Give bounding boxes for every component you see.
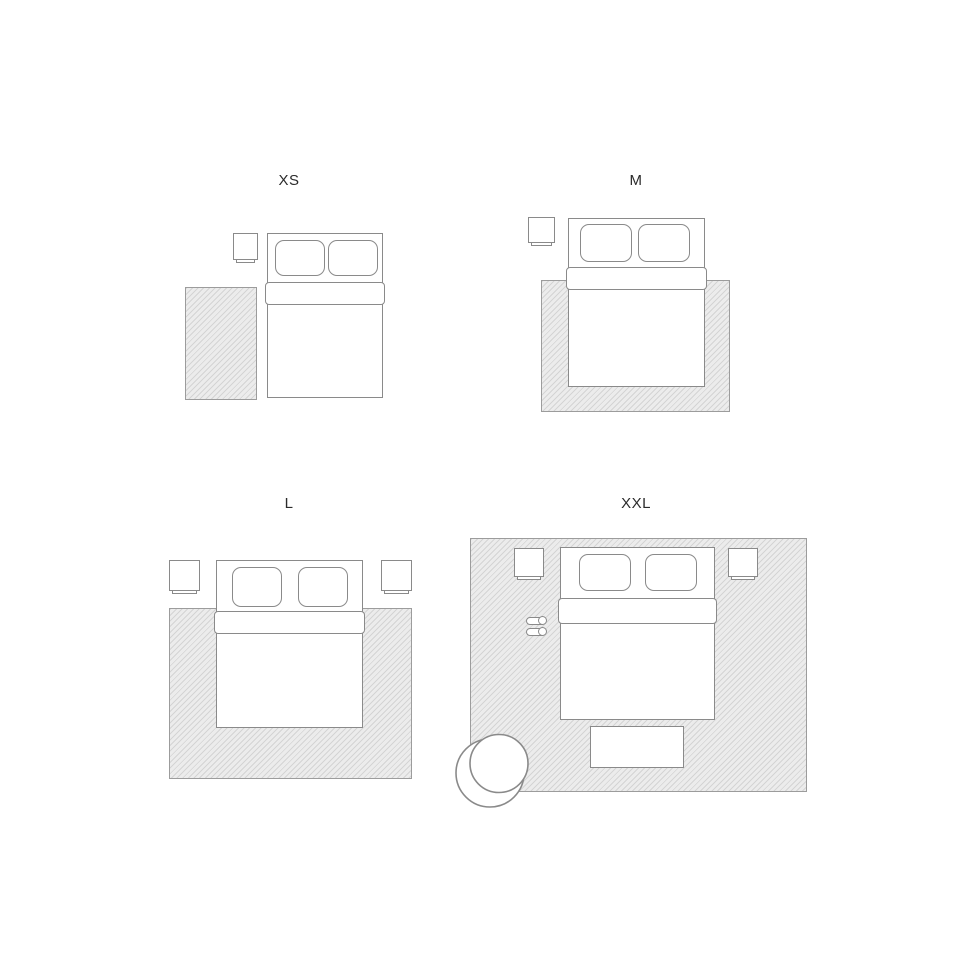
bed-xs xyxy=(267,233,383,398)
slipper-top xyxy=(526,617,545,625)
size-label-l: L xyxy=(239,495,339,512)
nightstand-base xyxy=(531,242,552,246)
bed-xxl xyxy=(560,547,715,720)
rug-xs xyxy=(185,287,257,400)
pillow-left xyxy=(275,240,325,276)
nightstand-base xyxy=(731,576,755,580)
nightstand-left xyxy=(514,548,544,577)
pillow-right xyxy=(328,240,378,276)
sheet-fold xyxy=(566,267,707,290)
nightstand-xs xyxy=(233,233,258,260)
slipper-bottom xyxy=(526,628,545,636)
rug-size-guide: XS M L xyxy=(0,0,970,971)
sheet-fold xyxy=(558,598,717,624)
size-label-xxl: XXL xyxy=(586,495,686,512)
nightstand-left xyxy=(169,560,200,591)
bed-m xyxy=(568,218,705,387)
armchair-icon xyxy=(452,731,530,813)
nightstand-m xyxy=(528,217,555,243)
pillow-right xyxy=(298,567,348,607)
pillow-left xyxy=(579,554,631,591)
nightstand-base xyxy=(384,590,409,594)
pillow-right xyxy=(645,554,697,591)
pillow-right xyxy=(638,224,690,262)
bed-l xyxy=(216,560,363,728)
nightstand-base xyxy=(236,259,255,263)
foot-bench xyxy=(590,726,684,768)
sheet-fold xyxy=(265,282,385,305)
pillow-left xyxy=(232,567,282,607)
slippers-icon xyxy=(526,617,545,636)
nightstand-right xyxy=(381,560,412,591)
nightstand-base xyxy=(172,590,197,594)
pillow-left xyxy=(580,224,632,262)
nightstand-right xyxy=(728,548,758,577)
nightstand-base xyxy=(517,576,541,580)
size-label-m: M xyxy=(586,172,686,189)
armchair-seat xyxy=(470,735,528,793)
size-label-xs: XS xyxy=(239,172,339,189)
sheet-fold xyxy=(214,611,365,634)
